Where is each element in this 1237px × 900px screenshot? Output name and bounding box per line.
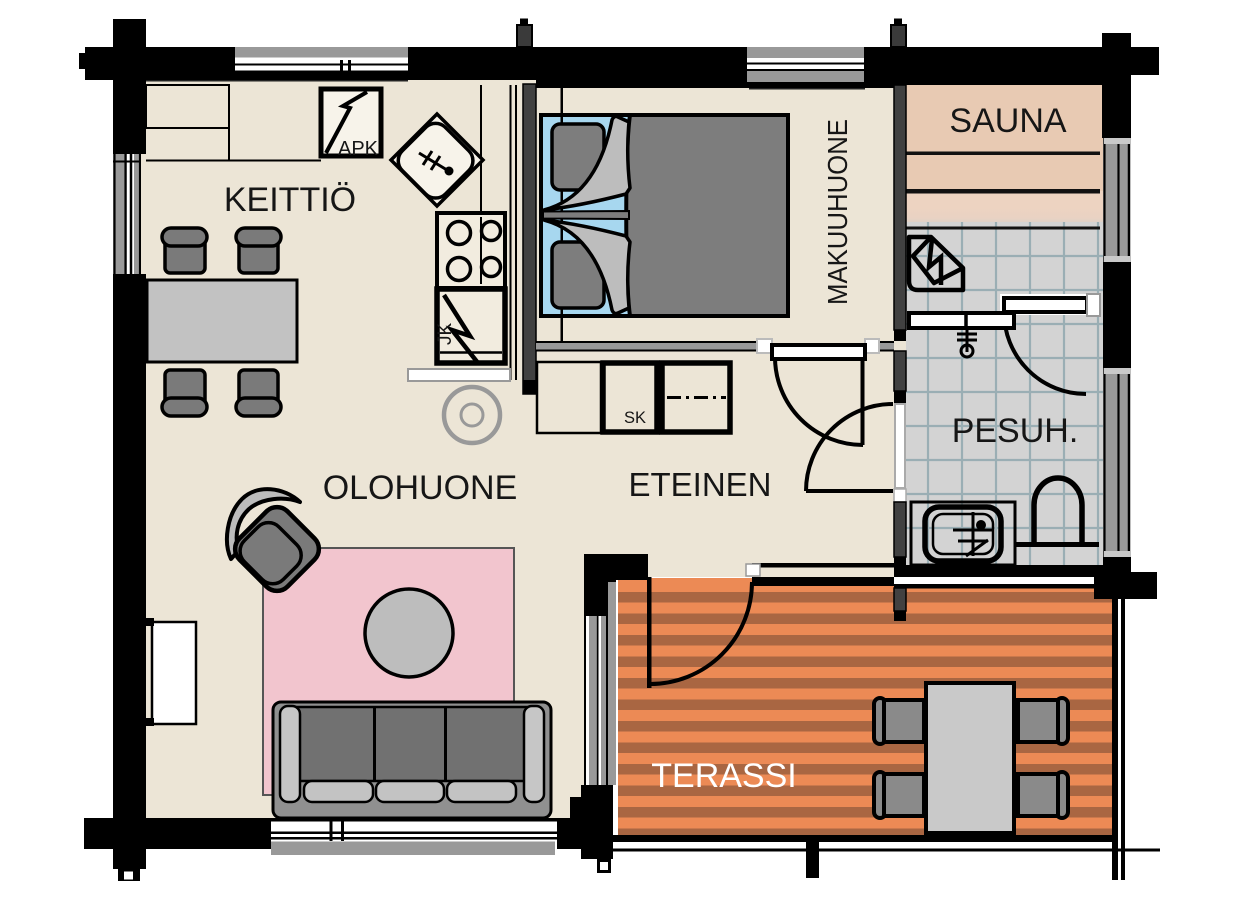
svg-text:MAKUUHUONE: MAKUUHUONE [822,119,853,305]
svg-text:SAUNA: SAUNA [949,102,1066,140]
svg-text:APK: APK [338,138,379,160]
svg-text:TERASSI: TERASSI [651,757,796,795]
svg-text:ETEINEN: ETEINEN [628,466,771,503]
svg-text:SK: SK [624,409,646,427]
svg-text:PESUH.: PESUH. [952,412,1079,450]
svg-text:KEITTIÖ: KEITTIÖ [224,181,356,219]
svg-text:JK: JK [435,323,456,346]
svg-text:OLOHUONE: OLOHUONE [323,469,518,507]
